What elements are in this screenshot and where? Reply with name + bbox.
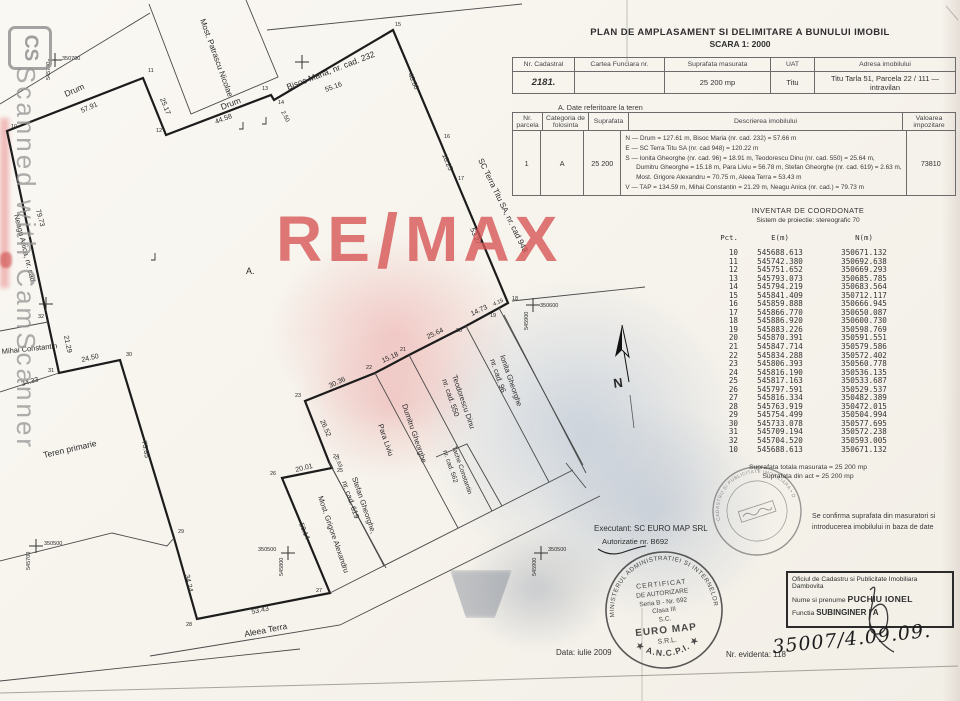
coordinate-row: 10545688.613350671.132	[704, 446, 912, 455]
summary-table-data-row: 2181. 25 200 mp Titu Titu Tarla 51, Parc…	[513, 72, 955, 93]
plan-label: 57.91	[80, 101, 99, 115]
parcel-description: N — Drum = 127.61 m, Bisoc Maria (nr. ca…	[621, 131, 906, 195]
value-valoare: 73810	[907, 131, 955, 195]
plan-point-number: 14	[278, 100, 284, 106]
plan-point-number: 18	[512, 296, 518, 302]
plan-label: 545900	[532, 558, 538, 576]
plan-label: 25.17	[158, 97, 171, 116]
plan-point-number: 23	[295, 393, 301, 399]
document-title: PLAN DE AMPLASAMENT SI DELIMITARE A BUNU…	[540, 27, 940, 49]
remax-max: MAX	[405, 203, 562, 275]
value-categoria: A	[541, 131, 584, 195]
title-line-2: SCARA 1: 2000	[540, 39, 940, 49]
plan-point-number: 15	[395, 22, 401, 28]
coordinates-rows: 10545688.613350671.13211545742.380350692…	[704, 249, 912, 454]
detail-table-data-row: 1 A 25 200 N — Drum = 127.61 m, Bisoc Ma…	[513, 131, 955, 195]
detail-table-header-row: Nr. parcela Categoria de folosinta Supra…	[513, 113, 955, 131]
coordinates-header-row: Pct. E(m) N(m)	[704, 233, 912, 242]
value-nr-parcela: 1	[513, 131, 541, 195]
remax-re: RE	[276, 203, 375, 275]
section-a-label: A. Date referitoare la teren	[558, 103, 643, 112]
col-n: N(m)	[822, 233, 906, 242]
plan-point-number: 20	[456, 328, 462, 334]
header-descriere: Descrierea imobilului	[629, 113, 903, 130]
plan-labels-layer: Drum57.9125.17Drum44.582.50Most. Patrasc…	[1, 18, 623, 639]
plan-point-number: 13	[262, 86, 268, 92]
plan-label: Dumitru Gheorghe	[400, 403, 429, 464]
plan-label: 50.14	[297, 522, 310, 541]
plan-point-number: 26	[270, 471, 276, 477]
plan-label: 75.85	[140, 440, 150, 459]
plan-point-number: 30	[126, 352, 132, 358]
plan-label: 24.50	[81, 353, 100, 364]
plan-label: Most. Patrascu Nicolae	[198, 18, 235, 99]
stamp-line-srl: S.R.L.	[657, 637, 677, 646]
remax-slash: /	[375, 199, 405, 284]
col-pct: Pct.	[704, 233, 738, 242]
value-cartea-funciara	[575, 72, 665, 93]
parcel-summary-table: Nr. Cadastral Cartea Funciara nr. Supraf…	[512, 57, 956, 94]
plan-point-number: 19	[490, 313, 496, 319]
header-uat: UAT	[771, 58, 815, 71]
value-nr-cadastral: 2181.	[513, 72, 575, 93]
value-adresa: Titu Tarla 51, Parcela 22 / 111 — intrav…	[815, 72, 955, 93]
terrain-symbol-marks	[151, 117, 266, 260]
coordinates-title: INVENTAR DE COORDONATE	[704, 206, 912, 215]
summary-table-header-row: Nr. Cadastral Cartea Funciara nr. Supraf…	[513, 58, 955, 72]
plan-label: 350700	[62, 56, 80, 62]
plan-label: 18.25	[440, 153, 453, 172]
plan-label: 350500	[258, 547, 276, 553]
main-parcel-boundary	[7, 30, 508, 619]
plan-point-number: 22	[366, 365, 372, 371]
camscanner-watermark-text: Scanned with CamScanner	[10, 66, 41, 450]
plan-point-number: 28	[186, 622, 192, 628]
stamp-line-euromap: EURO MAP	[635, 622, 698, 639]
plan-label: 350500	[44, 541, 62, 547]
plan-label: 350600	[540, 303, 558, 309]
plan-point-number: 25	[337, 468, 343, 474]
parcel-detail-table: Nr. parcela Categoria de folosinta Supra…	[512, 112, 956, 196]
header-nr-cadastral: Nr. Cadastral	[513, 58, 575, 71]
footer-date: Data: iulie 2009	[556, 648, 612, 657]
remax-watermark-wordmark: RE/MAX	[276, 198, 562, 285]
plan-point-number: 29	[178, 529, 184, 535]
certification-round-stamp: MINISTERUL ADMINISTRATIEI SI INTERNELOR …	[596, 542, 732, 678]
confirmation-note: Se confirma suprafata din masuratori si …	[812, 511, 958, 533]
plan-label: Para Liviu	[376, 423, 395, 457]
plan-label: 545900	[524, 312, 530, 330]
header-nr-parcela: Nr. parcela	[513, 113, 543, 130]
header-valoare: Valoarea impozitare	[903, 113, 955, 130]
plan-point-number: 16	[444, 134, 450, 140]
stamp-line-clasa: Clasa III	[652, 606, 677, 615]
plan-point-number: 24	[333, 454, 339, 460]
header-categoria: Categoria de folosinta	[543, 113, 589, 130]
title-line-1: PLAN DE AMPLASAMENT SI DELIMITARE A BUNU…	[540, 27, 940, 38]
plan-point-number: 27	[316, 588, 322, 594]
plan-label: 545700	[26, 552, 32, 570]
header-suprafata-masurata: Suprafata masurata	[665, 58, 771, 71]
plan-label: 34.24	[183, 574, 194, 593]
plan-label: 350500	[548, 547, 566, 553]
inspector-role-label: Functia	[792, 610, 814, 617]
plan-label: Aleea Terra	[243, 621, 288, 639]
plan-label: Most. Grigore Alexandru	[316, 495, 351, 574]
coordinates-subtitle: Sistem de proiectie: stereografic 70	[704, 217, 912, 224]
plan-label: N	[612, 375, 623, 391]
description-line: Dumitru Gheorghe = 15.18 m, Para Liviu =…	[625, 163, 901, 173]
plan-label: 545800	[279, 558, 285, 576]
plan-label: 48.80	[406, 72, 419, 91]
plan-label: A.	[246, 266, 255, 276]
col-e: E(m)	[738, 233, 822, 242]
plan-point-number: 12	[156, 128, 162, 134]
plan-label: 26.52	[318, 419, 332, 438]
description-line: E — SC Terra Titu SA (nr. cad 948) = 120…	[625, 144, 901, 154]
plan-point-number: 31	[48, 368, 54, 374]
ocpi-stamp-illegible-text	[742, 505, 772, 518]
plan-point-number: 21	[400, 347, 406, 353]
plan-point-number: 11	[148, 68, 154, 74]
camscanner-logo: CS	[8, 26, 52, 70]
confirmation-line-1: Se confirma suprafata din masuratori si	[812, 511, 958, 522]
description-line: N — Drum = 127.61 m, Bisoc Maria (nr. ca…	[625, 134, 901, 144]
executant-block: Executant: SC EURO MAP SRL Autorizatie n…	[594, 524, 708, 546]
inspector-name-label: Nume si prenume	[792, 597, 846, 604]
stamp-line-sc: S.C.	[658, 615, 671, 623]
coordinate-inventory: INVENTAR DE COORDONATE Sistem de proiect…	[704, 206, 912, 480]
plan-label: Drum	[63, 81, 86, 99]
executant-name: Executant: SC EURO MAP SRL	[594, 524, 708, 533]
plan-label: 2.50	[279, 110, 290, 124]
description-line: Most. Grigore Alexandru = 70.75 m, Aleea…	[625, 173, 901, 183]
plan-label: 21.29	[62, 335, 73, 354]
header-cartea-funciara: Cartea Funciara nr.	[575, 58, 665, 71]
description-line: S — Ionita Gheorghe (nr. cad. 96) = 18.9…	[625, 154, 901, 164]
plan-label: Teren primarie	[42, 438, 97, 460]
value-uat: Titu	[771, 72, 815, 93]
plan-label: 55.16	[324, 81, 343, 94]
value-suprafata: 25 200	[584, 131, 621, 195]
plan-point-number: 17	[458, 176, 464, 182]
plan-label: 15.18	[381, 351, 400, 365]
confirmation-line-2: introducerea imobilului in baza de date	[812, 522, 958, 533]
header-adresa: Adresa imobilului	[815, 58, 955, 71]
value-suprafata-masurata: 25 200 mp	[665, 72, 771, 93]
header-suprafata: Suprafata	[589, 113, 629, 130]
description-line: V — TAP = 134.59 m, Mihai Constantin = 2…	[625, 183, 901, 193]
